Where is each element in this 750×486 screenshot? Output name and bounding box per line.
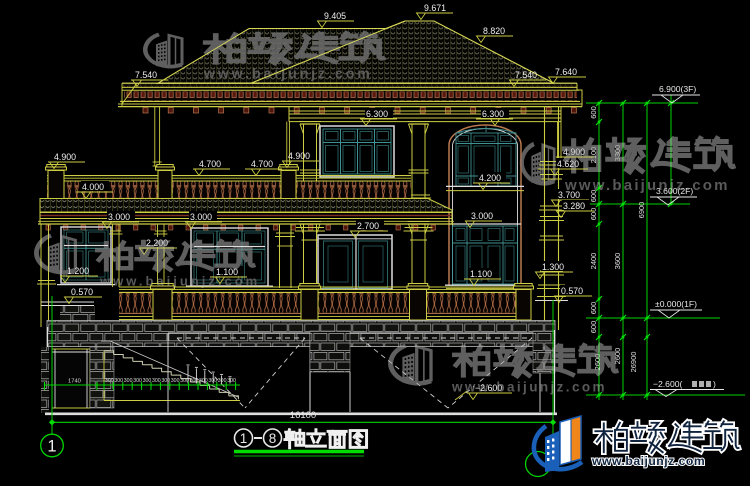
svg-text:300: 300 [133, 378, 142, 384]
svg-text:www.baijunjz.com: www.baijunjz.com [591, 454, 705, 468]
svg-text:300: 300 [171, 378, 180, 384]
svg-text:−2.600(: −2.600( [653, 379, 683, 389]
svg-text:300: 300 [208, 378, 217, 384]
svg-text:0.570: 0.570 [71, 287, 93, 297]
svg-text:7.640: 7.640 [555, 67, 577, 77]
svg-text:6.300: 6.300 [366, 109, 388, 119]
svg-text:4.700: 4.700 [199, 159, 221, 169]
svg-text:www.baijunjz.com: www.baijunjz.com [451, 380, 607, 395]
svg-text:6.900(3F): 6.900(3F) [659, 84, 696, 94]
svg-text:3.000: 3.000 [471, 211, 493, 221]
svg-text:www.baijunjz.com: www.baijunjz.com [203, 65, 373, 81]
svg-text:300: 300 [227, 378, 236, 384]
svg-text:1.300: 1.300 [542, 262, 564, 272]
svg-text:4.000: 4.000 [82, 182, 104, 192]
svg-text:600: 600 [589, 302, 598, 315]
svg-text:4.900: 4.900 [54, 152, 76, 162]
svg-text:300: 300 [105, 378, 114, 384]
svg-text:1: 1 [240, 431, 248, 446]
svg-text:www.baijunjz.com: www.baijunjz.com [564, 177, 730, 194]
svg-text:8.820: 8.820 [483, 26, 505, 36]
svg-text:300: 300 [199, 378, 208, 384]
svg-text:300: 300 [124, 378, 133, 384]
svg-text:26900: 26900 [629, 352, 638, 373]
svg-text:7.540: 7.540 [515, 70, 537, 80]
svg-text:1.100: 1.100 [470, 269, 492, 279]
svg-text:9.405: 9.405 [324, 11, 346, 21]
svg-text:300: 300 [218, 378, 227, 384]
svg-text:): ) [713, 379, 716, 389]
svg-text:600: 600 [589, 321, 598, 334]
svg-text:3600: 3600 [613, 253, 622, 270]
svg-text:300: 300 [190, 378, 199, 384]
svg-text:3.000: 3.000 [108, 212, 130, 222]
svg-text:2400: 2400 [589, 253, 598, 270]
svg-text:600: 600 [589, 208, 598, 221]
svg-text:300: 300 [114, 378, 123, 384]
svg-text:4.900: 4.900 [288, 151, 310, 161]
svg-text:8: 8 [269, 431, 277, 446]
svg-text:1740: 1740 [68, 379, 81, 385]
svg-text:7.540: 7.540 [135, 70, 157, 80]
svg-text:3.280: 3.280 [563, 201, 585, 211]
svg-text:1: 1 [47, 438, 56, 456]
svg-text:16100: 16100 [290, 410, 316, 421]
svg-text:300: 300 [152, 378, 161, 384]
svg-text:0.570: 0.570 [561, 286, 583, 296]
svg-text:4.200: 4.200 [479, 173, 501, 183]
svg-text:9.671: 9.671 [424, 3, 446, 13]
svg-text:300: 300 [143, 378, 152, 384]
svg-text:3.000: 3.000 [190, 212, 212, 222]
svg-text:300: 300 [161, 378, 170, 384]
svg-text:www.baijunjz.com: www.baijunjz.com [99, 274, 260, 289]
svg-text:6.300: 6.300 [482, 109, 504, 119]
svg-text:4.700: 4.700 [251, 159, 273, 169]
svg-text:600: 600 [589, 106, 598, 119]
svg-text:6900: 6900 [637, 202, 646, 219]
svg-text:2.700: 2.700 [357, 221, 379, 231]
svg-text:±0.000(1F): ±0.000(1F) [655, 299, 697, 309]
svg-text:300: 300 [180, 378, 189, 384]
